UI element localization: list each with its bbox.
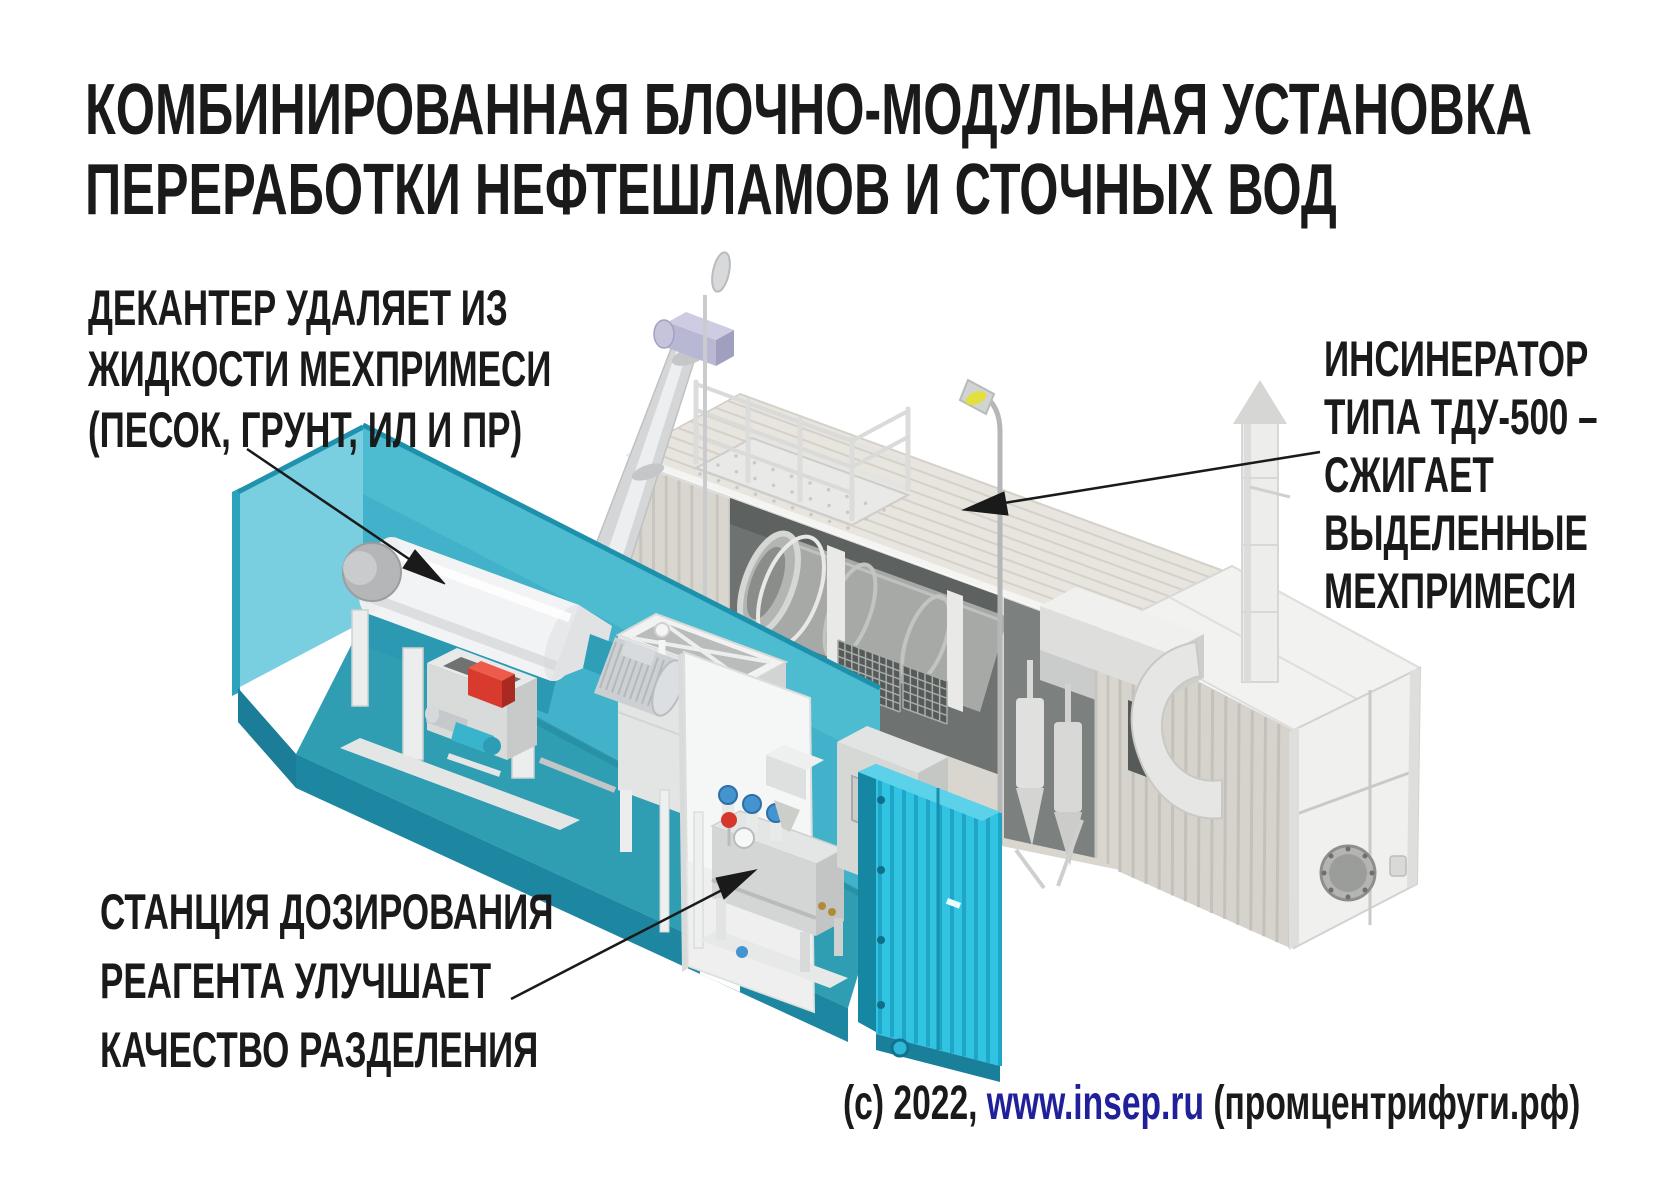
container-left-wall <box>238 427 363 688</box>
copyright-text: (c) 2022, <box>843 1077 987 1130</box>
annotation-dosing-station: СТАНЦИЯ ДОЗИРОВАНИЯ РЕАГЕНТА УЛУЧШАЕТ КА… <box>100 878 553 1085</box>
annotation-line: СТАНЦИЯ ДОЗИРОВАНИЯ <box>100 878 553 947</box>
annotation-line: СЖИГАЕТ <box>1324 446 1598 504</box>
annotation-line: ИНСИНЕРАТОР <box>1324 330 1598 388</box>
red-valve <box>721 812 737 828</box>
annotation-line: КАЧЕСТВО РАЗДЕЛЕНИЯ <box>100 1016 553 1085</box>
pressure-gauge <box>734 828 754 848</box>
website-link[interactable]: www.insep.ru <box>987 1077 1204 1130</box>
infographic-page: КОМБИНИРОВАННАЯ БЛОЧНО-МОДУЛЬНАЯ УСТАНОВ… <box>0 0 1680 1187</box>
annotation-line: РЕАГЕНТА УЛУЧШАЕТ <box>100 947 553 1016</box>
annotation-line: МЕХПРИМЕСИ <box>1324 562 1598 620</box>
conveyor-lever <box>709 251 733 293</box>
door-hinge <box>892 1040 908 1056</box>
annotation-line: ДЕКАНТЕР УДАЛЯЕТ ИЗ <box>88 278 551 339</box>
annotation-incinerator: ИНСИНЕРАТОР ТИПА ТДУ-500 – СЖИГАЕТ ВЫДЕЛ… <box>1324 330 1598 620</box>
annotation-decanter: ДЕКАНТЕР УДАЛЯЕТ ИЗ ЖИДКОСТИ МЕХПРИМЕСИ … <box>88 278 551 461</box>
annotation-line: ЖИДКОСТИ МЕХПРИМЕСИ <box>88 339 551 400</box>
copyright-suffix: (промцентрифуги.рф) <box>1204 1077 1580 1130</box>
page-title: КОМБИНИРОВАННАЯ БЛОЧНО-МОДУЛЬНАЯ УСТАНОВ… <box>85 70 1532 230</box>
chimney-tip <box>1233 380 1287 424</box>
annotation-line: ВЫДЕЛЕННЫЕ <box>1324 504 1598 562</box>
copyright-line: (c) 2022, www.insep.ru (промцентрифуги.р… <box>843 1076 1580 1131</box>
porthole <box>1321 846 1375 900</box>
annotation-line: ТИПА ТДУ-500 – <box>1324 388 1598 446</box>
annotation-line: (ПЕСОК, ГРУНТ, ИЛ И ПР) <box>88 400 551 461</box>
title-line-1: КОМБИНИРОВАННАЯ БЛОЧНО-МОДУЛЬНАЯ УСТАНОВ… <box>85 70 1532 150</box>
title-line-2: ПЕРЕРАБОТКИ НЕФТЕШЛАМОВ И СТОЧНЫХ ВОД <box>85 150 1532 230</box>
container-doors <box>858 764 1000 1082</box>
